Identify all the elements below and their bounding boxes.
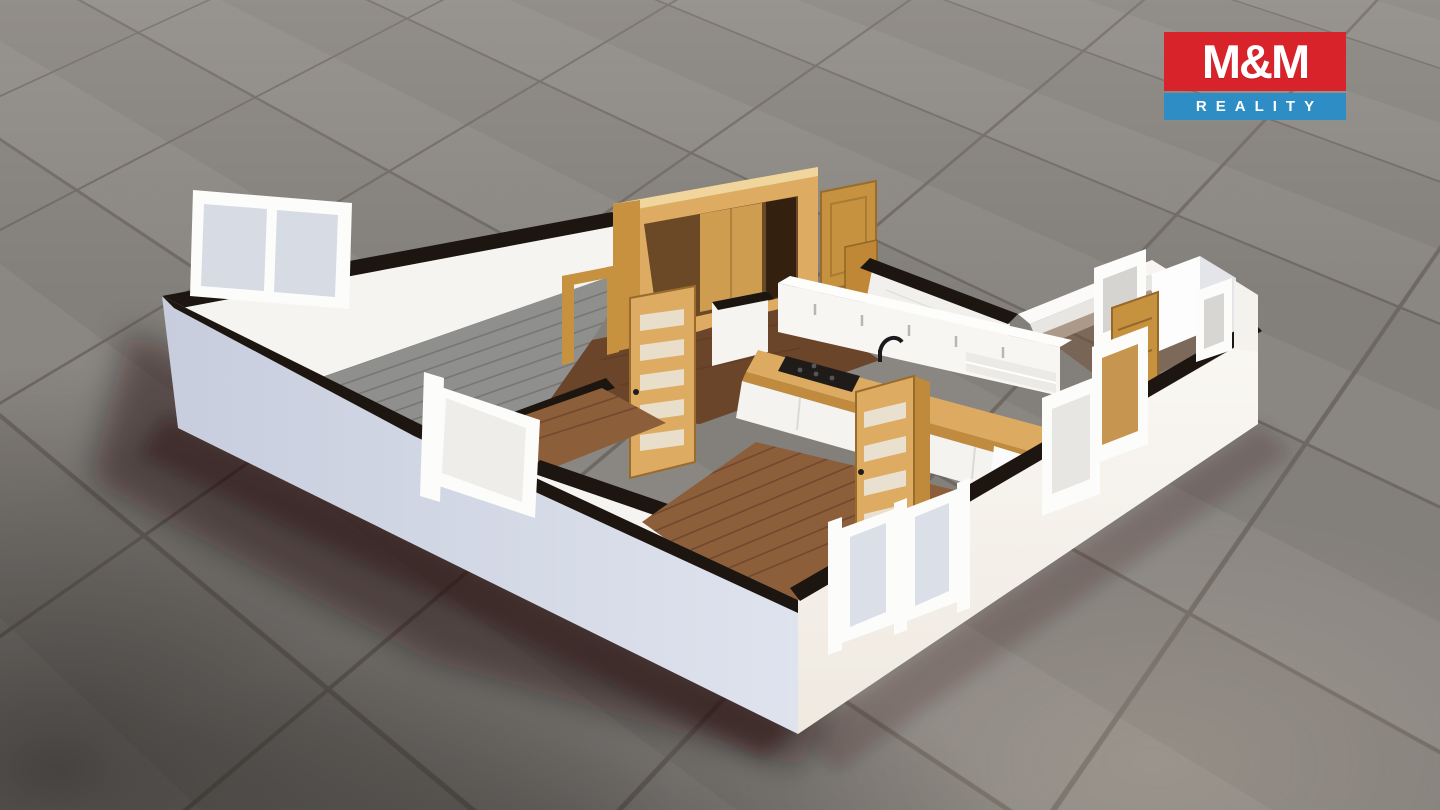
apartment-3d-model	[0, 0, 1440, 810]
front-window-right	[1042, 375, 1100, 516]
scene: M&M REALITY	[0, 0, 1440, 810]
door-handle	[858, 469, 864, 475]
brand-logo: M&M REALITY	[1164, 32, 1346, 120]
door-handle	[633, 389, 639, 395]
living-room-window	[190, 190, 352, 309]
entry-door	[821, 181, 877, 302]
brand-logo-mm: M&M	[1164, 32, 1346, 91]
wing-front-window	[1092, 326, 1148, 465]
brand-logo-reality: REALITY	[1164, 93, 1346, 120]
corner-window	[1196, 278, 1258, 362]
hall-glass-door	[630, 286, 695, 478]
